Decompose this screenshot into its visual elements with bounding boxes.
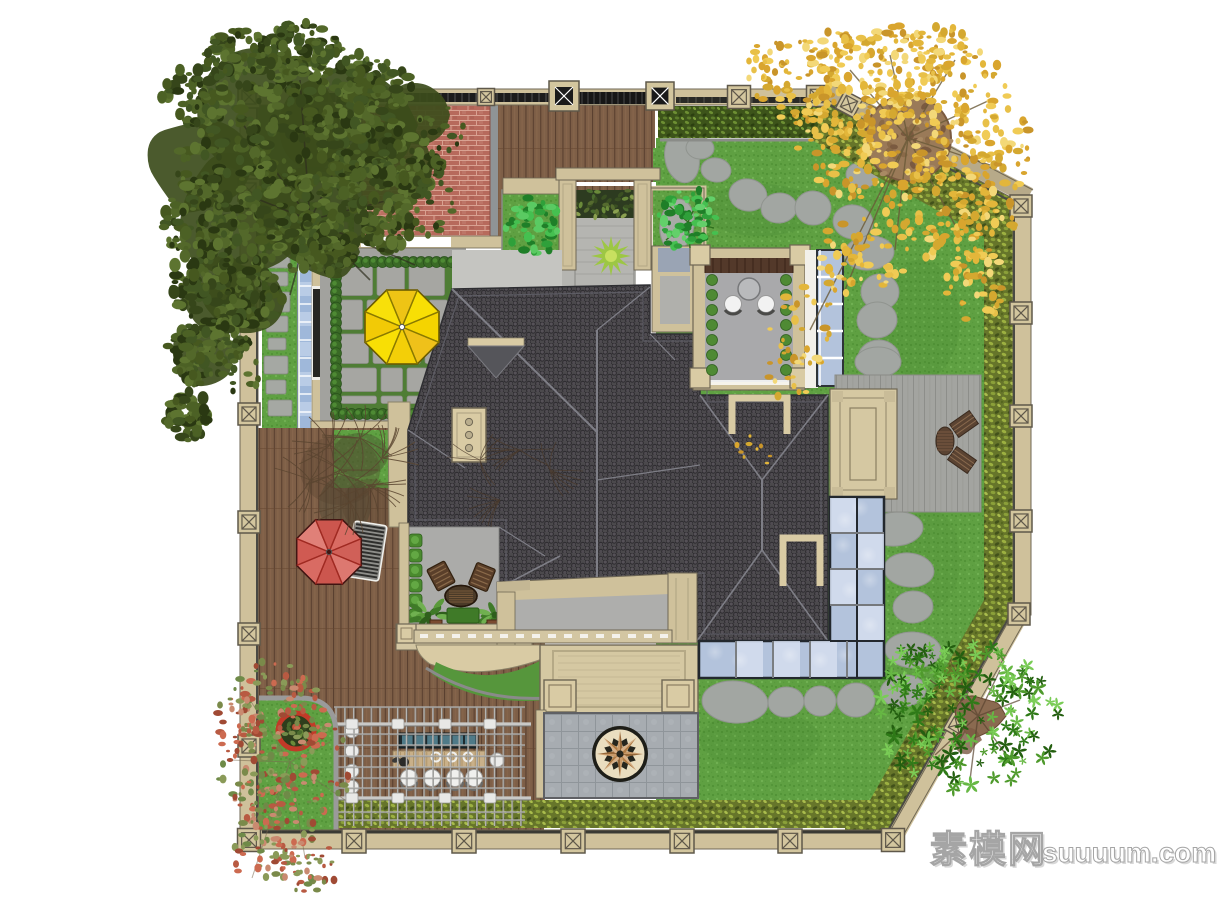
svg-text:素模网: 素模网 bbox=[930, 829, 1047, 870]
svg-text:suuuum.com: suuuum.com bbox=[1042, 837, 1216, 868]
